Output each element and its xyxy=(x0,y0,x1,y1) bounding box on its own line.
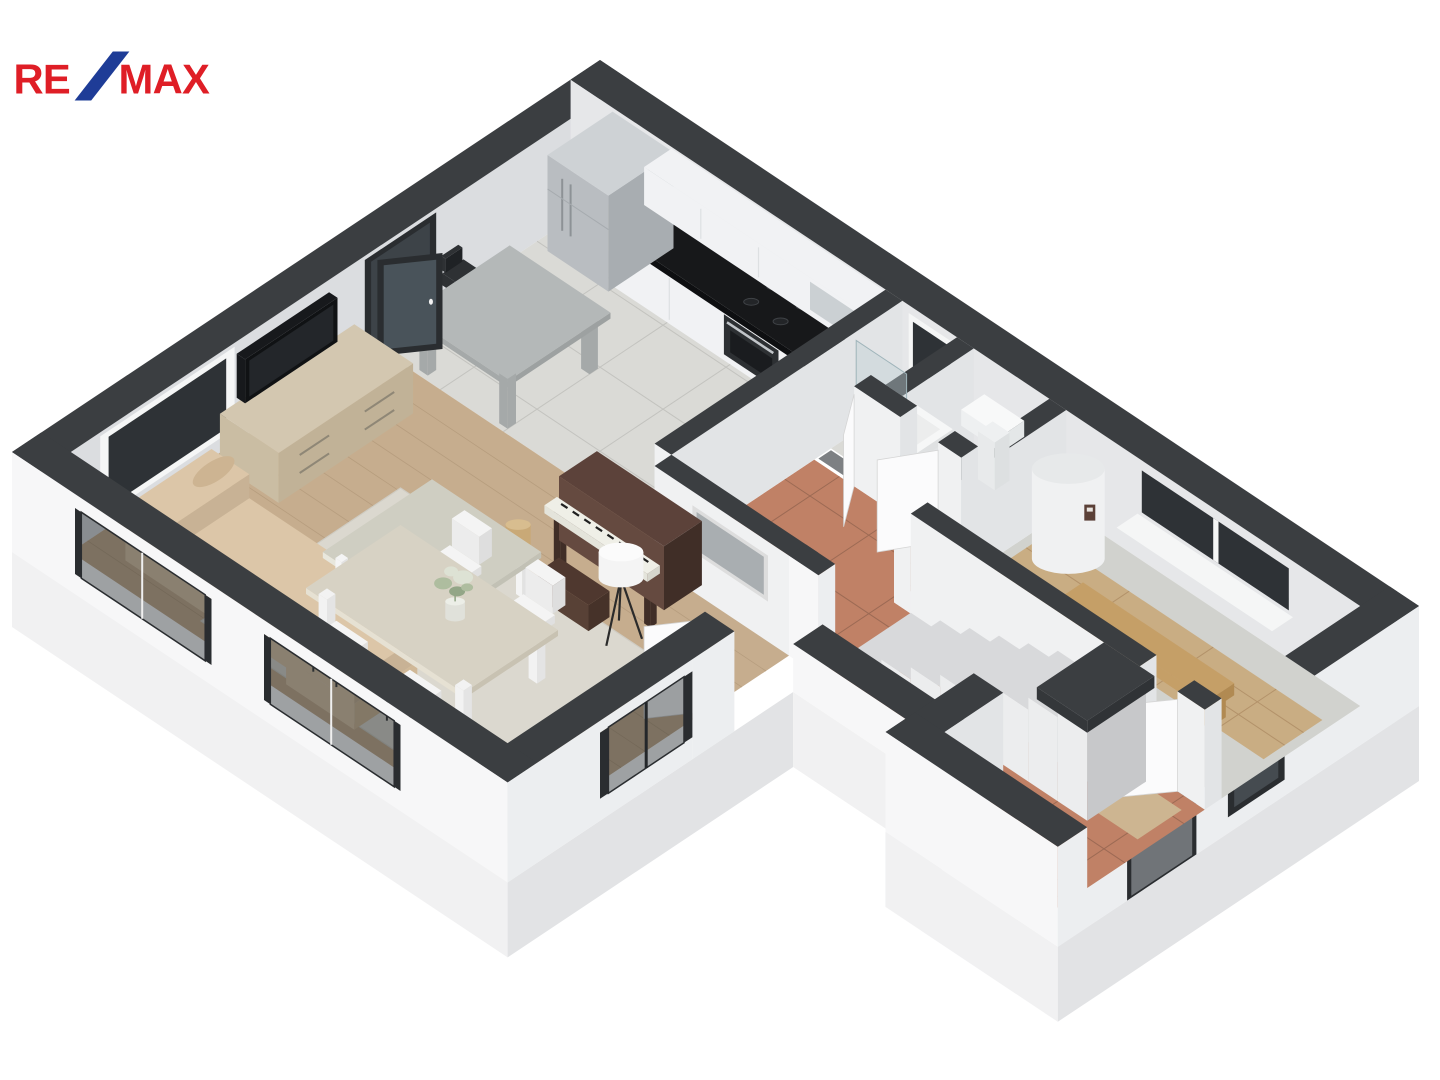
floorplan-scene xyxy=(0,0,1440,1080)
floorplan-render: RE MAX xyxy=(0,0,1440,1080)
